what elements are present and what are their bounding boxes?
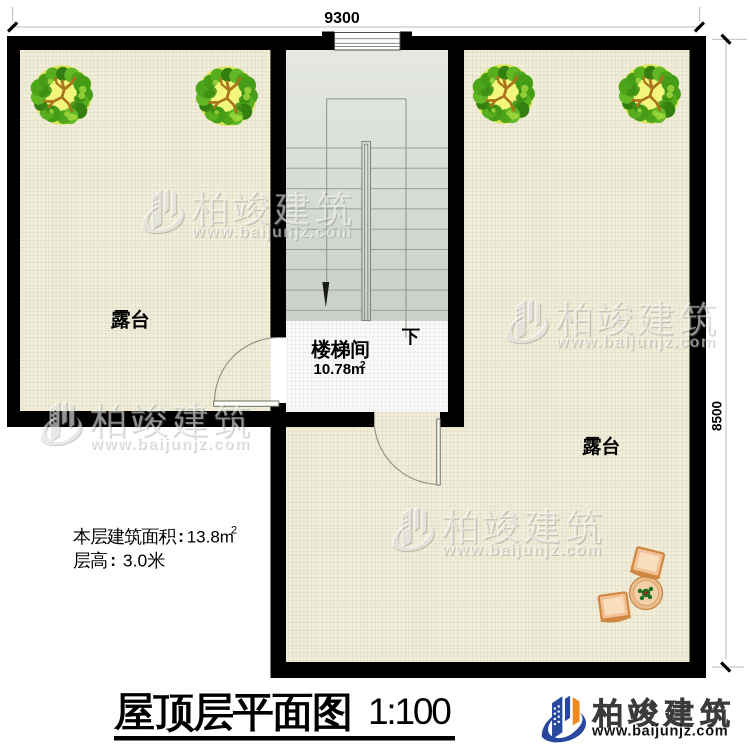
- svg-text:10.78m: 10.78m: [314, 361, 365, 378]
- svg-text:3.0: 3.0: [123, 551, 148, 571]
- svg-text:8500: 8500: [710, 401, 725, 431]
- svg-text::: :: [176, 529, 186, 548]
- svg-text:9300: 9300: [324, 10, 360, 27]
- svg-text:www.baijunjz.com: www.baijunjz.com: [591, 724, 728, 740]
- svg-text::: :: [108, 553, 118, 572]
- svg-text:2: 2: [231, 525, 237, 537]
- svg-text:2: 2: [360, 360, 366, 371]
- svg-text:1:100: 1:100: [368, 691, 451, 732]
- svg-text:13.8m: 13.8m: [187, 528, 234, 547]
